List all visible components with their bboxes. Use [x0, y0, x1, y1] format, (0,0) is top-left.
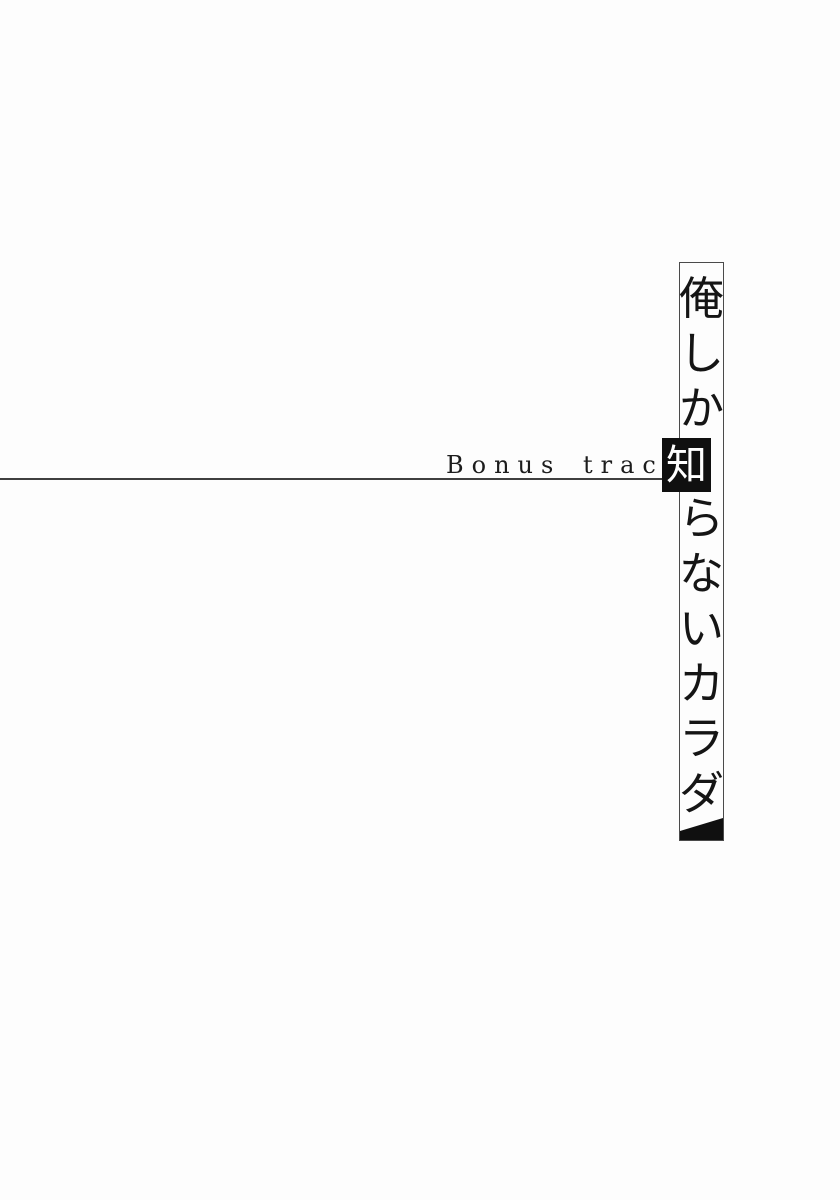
title-char: か [680, 381, 723, 436]
title-char-highlighted: 知 [680, 436, 723, 491]
title-char-highlight-box: 知 [662, 438, 711, 492]
title-char: な [680, 546, 723, 601]
title-char: ら [680, 491, 723, 546]
chapter-title-column: 俺 し か 知 ら な い カ ラ ダ [679, 262, 724, 841]
bonus-track-label: Bonus track [446, 451, 686, 479]
title-char: カ [680, 656, 723, 711]
title-char: い [680, 601, 723, 656]
corner-wedge [680, 818, 723, 840]
title-char: ダ [680, 766, 723, 821]
title-char: ラ [680, 711, 723, 766]
title-char: し [680, 326, 723, 381]
title-char: 俺 [680, 271, 723, 326]
manga-bonus-track-page: Bonus track 俺 し か 知 ら な い カ ラ ダ [0, 0, 840, 1200]
